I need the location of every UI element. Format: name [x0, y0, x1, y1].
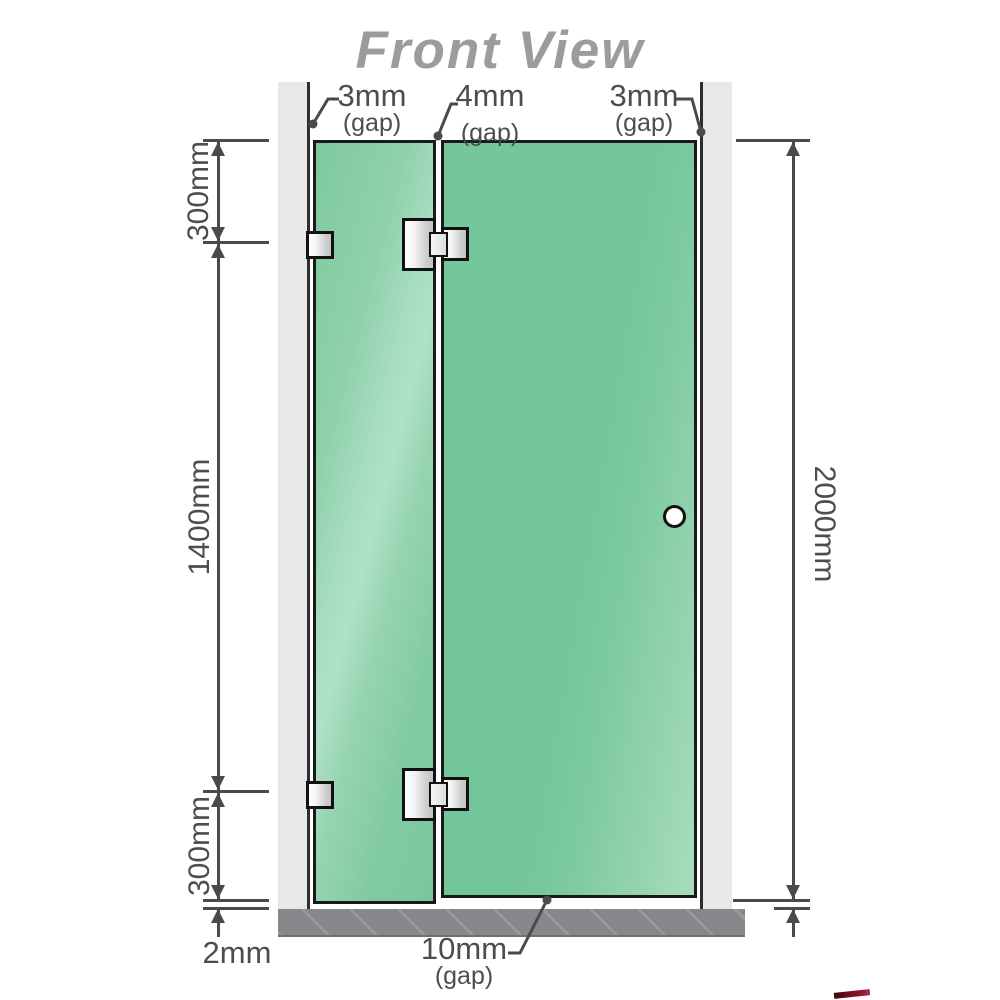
gap-sub-label: (gap) [440, 121, 540, 145]
right-dim-line [792, 140, 795, 902]
top-hinge-pivot [429, 232, 448, 257]
dim-arrow-up [786, 142, 800, 156]
door-glass-panel [441, 140, 697, 898]
door-knob [663, 505, 686, 528]
gap-value: 3mm [594, 81, 694, 111]
gap-value: 4mm [440, 81, 540, 111]
gap-sub-label: (gap) [414, 964, 514, 988]
dim-label-height-2000mm: 2000mm [808, 449, 840, 599]
dim-tick [733, 899, 810, 902]
floor-strip [278, 909, 745, 937]
front-view-diagram: Front View 300mm 1400mm 300mm 2mm 2000mm [0, 0, 1000, 1000]
gap-sub-label: (gap) [594, 111, 694, 135]
dim-label-floor-gap-2mm: 2mm [200, 936, 274, 970]
wall-bracket-top [306, 231, 334, 259]
dim-arrow-down [786, 885, 800, 899]
gap-sub-label: (gap) [322, 111, 422, 135]
dim-label-bottom-300mm: 300mm [184, 786, 216, 906]
bottom-hinge-pivot [429, 782, 448, 807]
gap-callout-top-right: 3mm (gap) [594, 81, 694, 135]
watermark-fragment [834, 989, 870, 999]
dim-label-middle-1400mm: 1400mm [184, 447, 216, 587]
dim-label-top-300mm: 300mm [183, 131, 215, 251]
right-wall [700, 82, 732, 909]
gap-value: 3mm [322, 81, 422, 111]
dim-arrow-up [211, 909, 225, 923]
dim-arrow-up [786, 909, 800, 923]
gap-callout-top-left: 3mm (gap) [322, 81, 422, 135]
wall-bracket-bottom [306, 781, 334, 809]
diagram-title: Front View [0, 20, 1000, 81]
gap-callout-bottom: 10mm (gap) [414, 934, 514, 988]
gap-value: 10mm [414, 934, 514, 964]
gap-callout-top-middle: 4mm (gap) [440, 81, 540, 145]
